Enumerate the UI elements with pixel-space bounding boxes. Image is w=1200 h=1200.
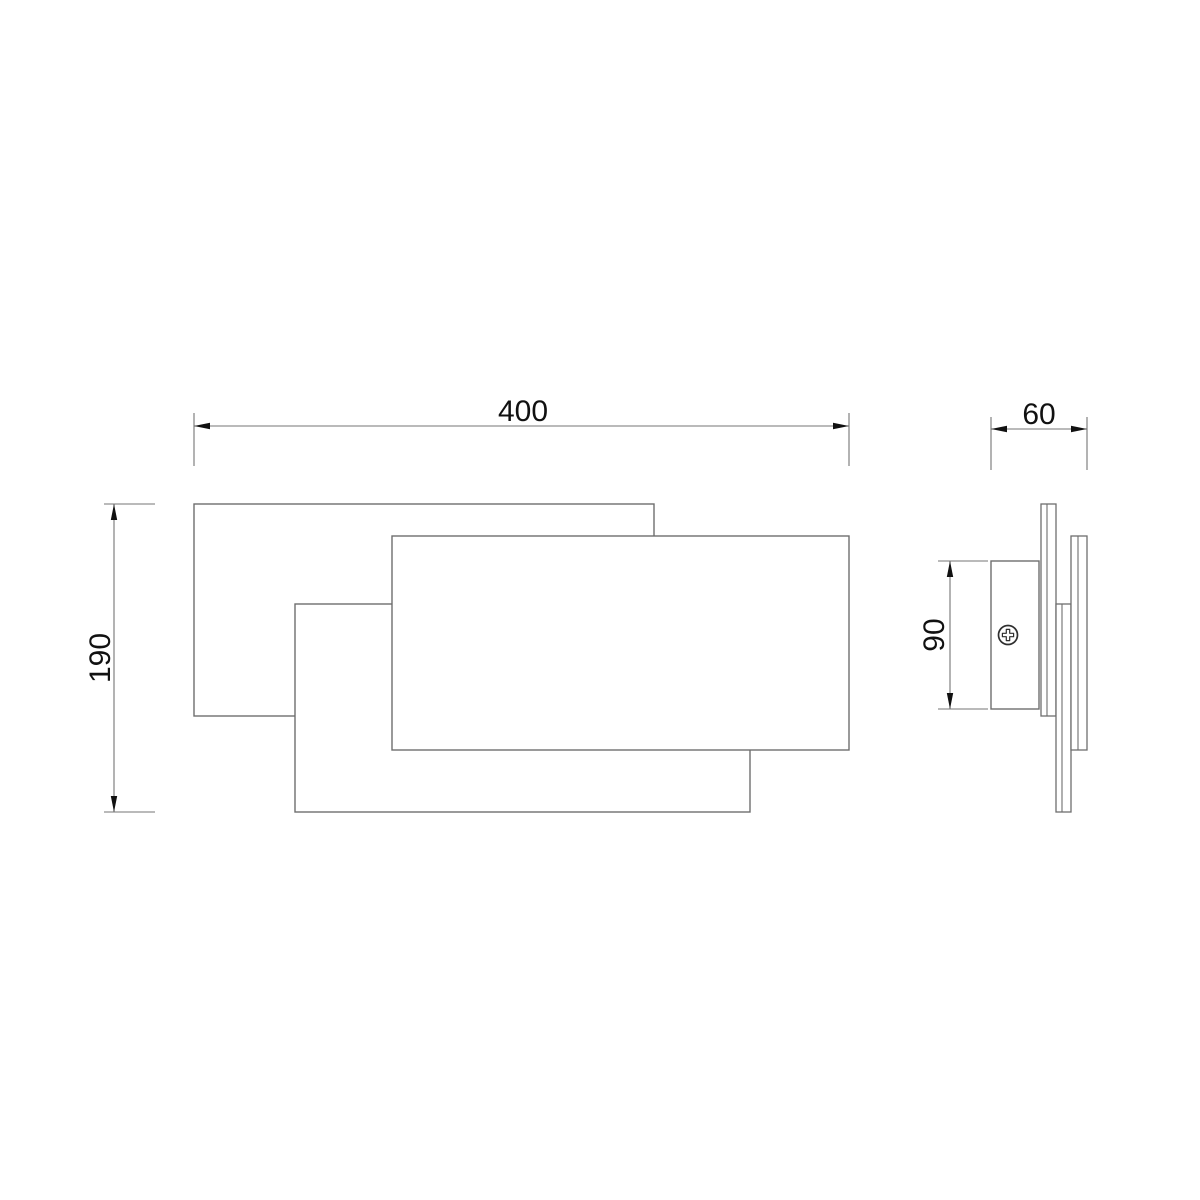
dimension-label: 400 xyxy=(498,395,548,428)
screw-icon xyxy=(999,626,1018,645)
drawing-page: 4006019090 xyxy=(0,0,1200,1200)
dimension-label: 190 xyxy=(84,633,117,683)
dimension-label: 90 xyxy=(918,618,951,651)
back-panel-edge-outline xyxy=(1041,504,1056,716)
back-panel-edge xyxy=(1041,504,1056,716)
middle-panel-edge xyxy=(1056,604,1071,812)
front-panel-edge-outline xyxy=(1071,536,1087,750)
front-panel xyxy=(392,536,849,750)
technical-drawing: 4006019090 xyxy=(0,0,1200,1200)
dimension-label: 60 xyxy=(1022,398,1055,431)
front-panel-edge xyxy=(1071,536,1087,750)
middle-panel-edge-outline xyxy=(1056,604,1071,812)
